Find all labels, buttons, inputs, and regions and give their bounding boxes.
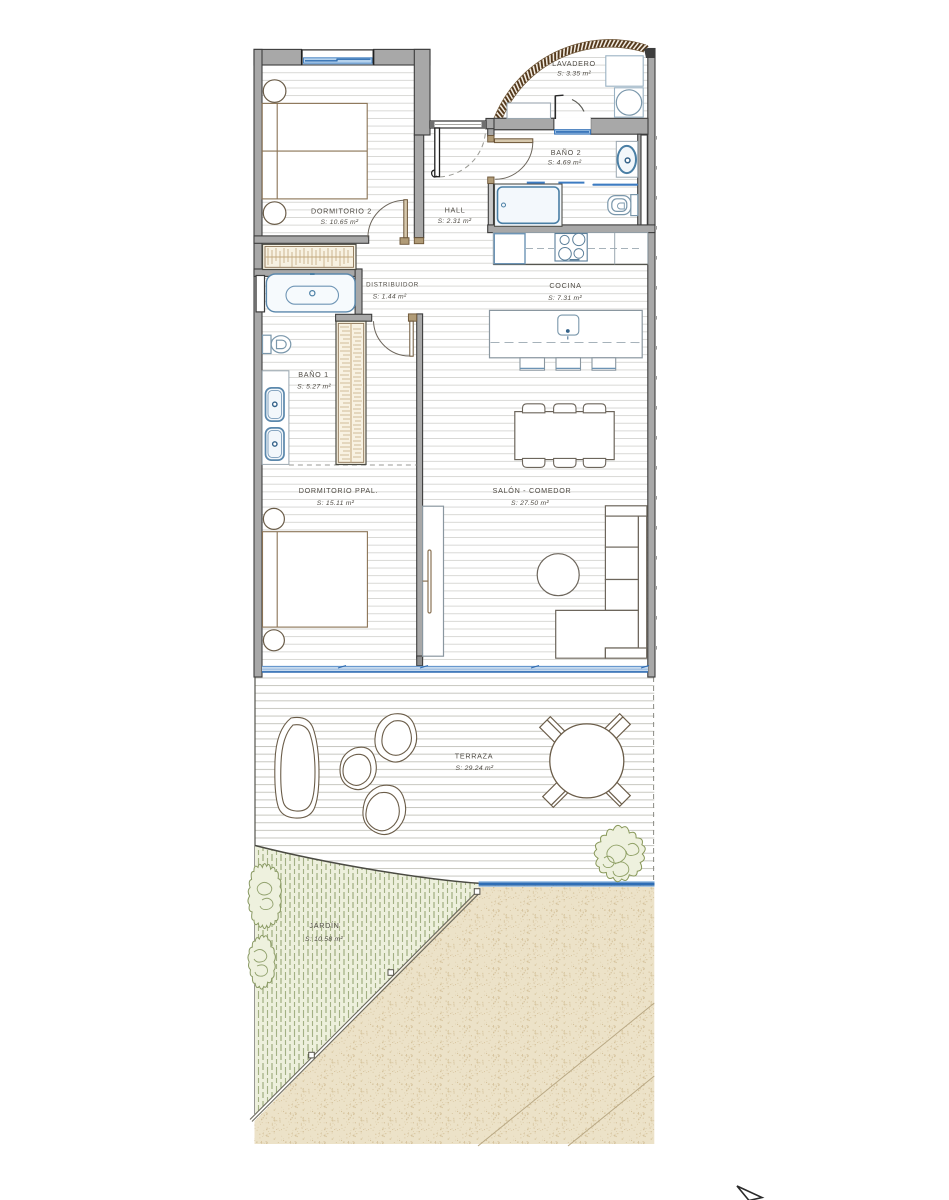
svg-text:DORMITORIO PPAL.: DORMITORIO PPAL.: [299, 486, 379, 495]
svg-text:S: 29.24 m²: S: 29.24 m²: [456, 765, 494, 772]
svg-text:S: 2.31 m²: S: 2.31 m²: [438, 218, 472, 225]
svg-text:S: 1.44 m²: S: 1.44 m²: [373, 294, 407, 301]
svg-text:S: 4.69 m²: S: 4.69 m²: [548, 160, 582, 167]
svg-text:DORMITORIO 2: DORMITORIO 2: [311, 206, 372, 215]
svg-text:JARDÍN: JARDÍN: [309, 921, 339, 930]
svg-text:S: 5.27 m²: S: 5.27 m²: [297, 384, 331, 391]
svg-text:S: 15.11 m²: S: 15.11 m²: [317, 500, 355, 507]
svg-text:S: 10.58 m²: S: 10.58 m²: [305, 936, 343, 943]
svg-text:TERRAZA: TERRAZA: [455, 751, 493, 760]
svg-text:S: 10.65 m²: S: 10.65 m²: [321, 219, 359, 226]
svg-text:S: 27.50 m²: S: 27.50 m²: [511, 500, 549, 507]
svg-text:S: 7.31 m²: S: 7.31 m²: [548, 295, 582, 302]
svg-text:S: 3.35 m²: S: 3.35 m²: [557, 71, 591, 78]
svg-text:BAÑO 1: BAÑO 1: [298, 370, 329, 379]
svg-text:SALÓN - COMEDOR: SALÓN - COMEDOR: [493, 486, 572, 495]
svg-text:BAÑO 2: BAÑO 2: [551, 148, 582, 157]
svg-text:COCINA: COCINA: [549, 281, 581, 290]
svg-text:HALL: HALL: [445, 206, 466, 215]
svg-text:DISTRIBUIDOR: DISTRIBUIDOR: [366, 281, 419, 288]
svg-text:LAVADERO: LAVADERO: [552, 59, 596, 68]
